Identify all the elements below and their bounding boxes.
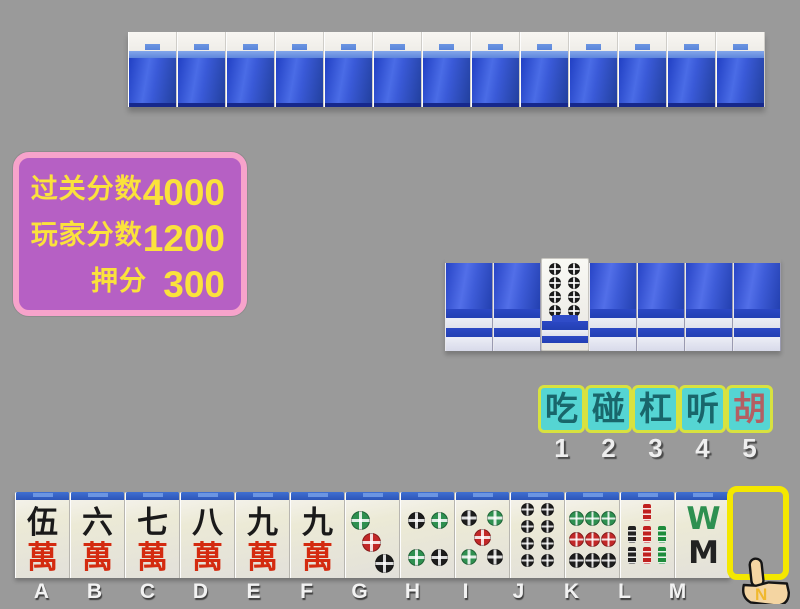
opponent-tile-back xyxy=(716,32,765,107)
right-wall xyxy=(445,258,781,351)
opponent-wall xyxy=(128,32,765,107)
pass-score-label: 过关分数 xyxy=(19,166,143,212)
opponent-tile-back xyxy=(275,32,324,107)
hand-key-label: D xyxy=(174,580,227,604)
opponent-tile-back xyxy=(226,32,275,107)
tile-char: 六 xyxy=(71,507,124,538)
hand-key-row: A B C D E F G H I J K L M xyxy=(15,580,704,604)
opponent-tile-back xyxy=(520,32,569,107)
opponent-tile-back xyxy=(618,32,667,107)
hotkey-label-4: 4 xyxy=(679,433,726,464)
wall-tile-back xyxy=(589,263,637,351)
bamboo-pattern-bottom: M xyxy=(676,538,729,569)
opponent-tile-back xyxy=(422,32,471,107)
wall-tile-back xyxy=(637,263,685,351)
hotkey-label-5: 5 xyxy=(726,433,773,464)
hand-tile-nine-wan[interactable]: 九 萬 xyxy=(235,492,290,578)
hand-tile-seven-wan[interactable]: 七 萬 xyxy=(125,492,180,578)
wall-tile-back xyxy=(445,263,493,351)
hand-key-label: M xyxy=(651,580,704,604)
wall-tile-back xyxy=(733,263,781,351)
game-table: { "app": { "background_color": "#9a9a9a"… xyxy=(0,0,800,600)
tile-char: 萬 xyxy=(16,542,69,573)
player-score-value: 1200 xyxy=(143,219,241,259)
score-row: 玩家分数 1200 xyxy=(19,212,241,258)
score-panel: 过关分数 4000 玩家分数 1200 押分 300 xyxy=(13,152,247,316)
hotkey-label-1: 1 xyxy=(538,433,585,464)
bet-score-label: 押分 xyxy=(19,258,147,304)
opponent-tile-back xyxy=(177,32,226,107)
action-bar: 吃 碰 杠 听 胡 xyxy=(538,385,773,433)
hand-key-label: L xyxy=(598,580,651,604)
hotkey-label-3: 3 xyxy=(632,433,679,464)
hand-tile-eight-dots[interactable] xyxy=(510,492,565,578)
tile-char: 萬 xyxy=(126,542,179,573)
tile-char: 八 xyxy=(181,507,234,538)
hand-tile-three-dots[interactable] xyxy=(345,492,400,578)
hand-cursor-icon: N xyxy=(735,556,793,604)
player-score-label: 玩家分数 xyxy=(19,212,143,258)
hand-tile-nine-dots[interactable] xyxy=(565,492,620,578)
wall-tile-back xyxy=(493,263,541,351)
hand-key-label: A xyxy=(15,580,68,604)
hand-tile-seven-bamboo[interactable] xyxy=(620,492,675,578)
hand-tile-four-dots[interactable] xyxy=(400,492,455,578)
opponent-tile-back xyxy=(324,32,373,107)
hand-key-label: H xyxy=(386,580,439,604)
opponent-tile-back xyxy=(569,32,618,107)
ting-button[interactable]: 听 xyxy=(679,385,726,433)
hand-key-label: C xyxy=(121,580,174,604)
cursor-letter: N xyxy=(755,585,767,604)
action-hotkeys: 1 2 3 4 5 xyxy=(538,433,773,464)
hand-tile-five-dots[interactable] xyxy=(455,492,510,578)
hand-tile-nine-wan[interactable]: 九 萬 xyxy=(290,492,345,578)
hand-key-label: I xyxy=(439,580,492,604)
player-hand: 伍 萬 六 萬 七 萬 八 萬 九 萬 九 萬 xyxy=(15,492,730,578)
hand-key-label: B xyxy=(68,580,121,604)
pass-score-value: 4000 xyxy=(143,173,241,213)
hand-key-label: E xyxy=(227,580,280,604)
hand-key-label: K xyxy=(545,580,598,604)
hu-button[interactable]: 胡 xyxy=(726,385,773,433)
hand-tile-six-wan[interactable]: 六 萬 xyxy=(70,492,125,578)
opponent-tile-back xyxy=(373,32,422,107)
bamboo-pattern-top: W xyxy=(676,504,729,535)
tile-char: 九 xyxy=(236,507,289,538)
score-row: 押分 300 xyxy=(19,258,241,304)
opponent-tile-back xyxy=(667,32,716,107)
hand-tile-eight-bamboo[interactable]: W M xyxy=(675,492,730,578)
tile-char: 萬 xyxy=(236,542,289,573)
opponent-tile-back xyxy=(128,32,177,107)
tile-edge-notch xyxy=(552,315,578,322)
hand-tile-eight-wan[interactable]: 八 萬 xyxy=(180,492,235,578)
chi-button[interactable]: 吃 xyxy=(538,385,585,433)
tile-char: 萬 xyxy=(291,542,344,573)
hand-key-label: G xyxy=(333,580,386,604)
revealed-tile-eight-dots xyxy=(541,258,589,351)
peng-button[interactable]: 碰 xyxy=(585,385,632,433)
opponent-tile-back xyxy=(471,32,520,107)
gang-button[interactable]: 杠 xyxy=(632,385,679,433)
tile-char: 萬 xyxy=(71,542,124,573)
bet-score-value: 300 xyxy=(147,265,241,305)
hand-key-label: F xyxy=(280,580,333,604)
hand-key-label: J xyxy=(492,580,545,604)
tile-char: 七 xyxy=(126,507,179,538)
tile-char: 伍 xyxy=(16,507,69,538)
wall-tile-back xyxy=(685,263,733,351)
tile-char: 萬 xyxy=(181,542,234,573)
hand-tile-five-wan[interactable]: 伍 萬 xyxy=(15,492,70,578)
score-row: 过关分数 4000 xyxy=(19,166,241,212)
tile-char: 九 xyxy=(291,507,344,538)
hotkey-label-2: 2 xyxy=(585,433,632,464)
